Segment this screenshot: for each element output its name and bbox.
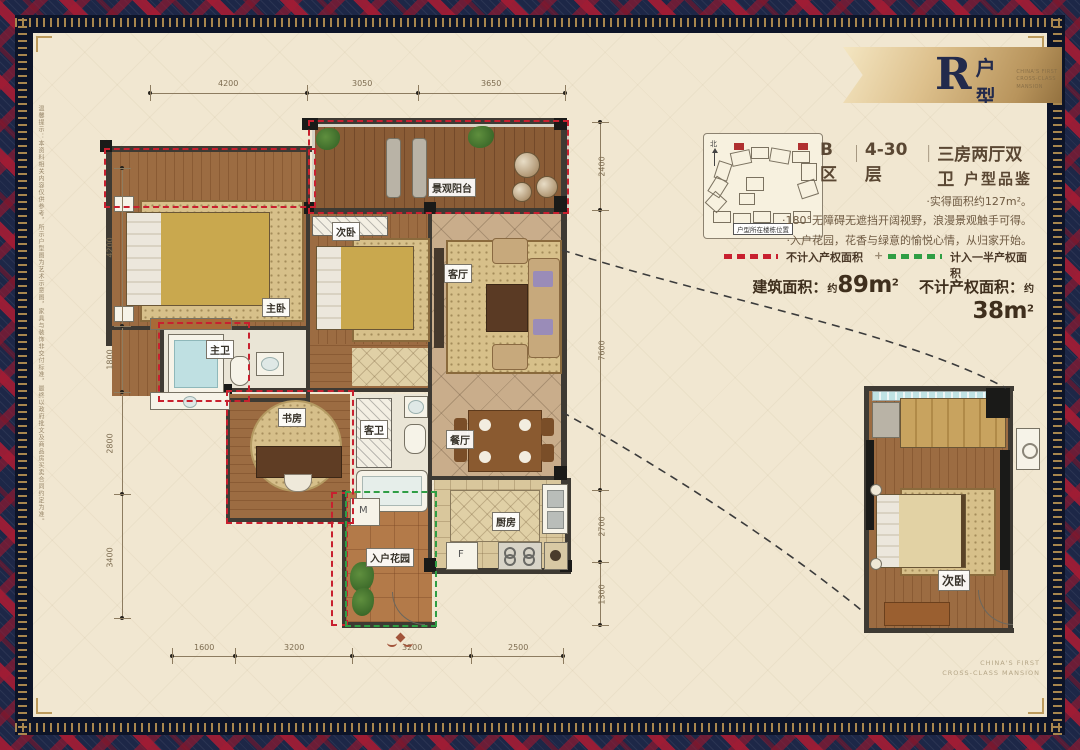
cabinet bbox=[544, 542, 568, 570]
sink bbox=[404, 396, 428, 418]
fridge: F bbox=[446, 542, 478, 570]
detail-shelf bbox=[872, 402, 900, 438]
room-label-balcony: 景观阳台 bbox=[428, 178, 476, 197]
corner-ornament bbox=[36, 36, 52, 52]
building-outline bbox=[792, 151, 810, 163]
unit-type-banner: R 户型 CHINA'S FIRST CROSS-CLASS MANSION bbox=[843, 47, 1062, 103]
unit-suffix: 户型 bbox=[976, 52, 1003, 110]
built-area-value: 89m bbox=[837, 272, 891, 298]
dining-chair bbox=[541, 418, 554, 436]
selling-point: ·实得面积约127m²。 bbox=[712, 192, 1032, 211]
room-label-study: 书房 bbox=[278, 408, 306, 427]
non-property-boundary-balcony bbox=[308, 120, 569, 214]
corner-ornament bbox=[36, 698, 52, 714]
red-dash-sample bbox=[724, 254, 778, 259]
ac-unit bbox=[1016, 428, 1040, 470]
closet bbox=[112, 330, 160, 396]
room-label-kitchen: 厨房 bbox=[492, 512, 520, 531]
frame-ticks-bottom bbox=[15, 723, 1065, 732]
footer-tagline: CHINA'S FIRST CROSS-CLASS MANSION bbox=[860, 658, 1040, 679]
selling-points: ·实得面积约127m²。 ·180°无障碍无遮挡开阔视野，浪漫景观触手可得。 ·… bbox=[712, 192, 1032, 250]
kitchen-sink-counter bbox=[542, 484, 568, 534]
toilet bbox=[404, 424, 426, 454]
excl-area-value: 38m bbox=[973, 298, 1027, 324]
excl-area-label: 不计产权面积： bbox=[919, 278, 1024, 296]
banner-tagline: CHINA'S FIRST CROSS-CLASS MANSION bbox=[1016, 69, 1062, 92]
dining-chair bbox=[541, 444, 554, 462]
legend-plus: + bbox=[874, 249, 883, 262]
legend: 不计入产权面积 + 计入一半产权面积 bbox=[712, 249, 1034, 263]
room-label-master: 主卧 bbox=[262, 298, 290, 317]
sink bbox=[256, 352, 284, 376]
corner-ornament bbox=[1028, 698, 1044, 714]
detail-bench bbox=[884, 602, 950, 626]
building-outline bbox=[746, 177, 764, 191]
room-label-master-bath: 主卫 bbox=[206, 340, 234, 359]
room-label-second: 次卧 bbox=[332, 222, 360, 241]
green-dash-sample bbox=[888, 254, 942, 259]
room-label-dining: 餐厅 bbox=[446, 430, 474, 449]
north-arrow-icon bbox=[714, 150, 715, 166]
detail-bed bbox=[876, 494, 966, 568]
brand-crest-icon bbox=[388, 632, 412, 648]
room-label-guest-bath: 客卫 bbox=[360, 420, 388, 439]
frame-ticks-right bbox=[1053, 15, 1062, 735]
armchair bbox=[492, 238, 528, 264]
selling-point: ·入户花园，花香与绿意的愉悦心情，从归家开始。 bbox=[712, 231, 1032, 250]
building-outline bbox=[769, 147, 791, 164]
frame-ticks-top bbox=[15, 18, 1065, 27]
sofa bbox=[528, 258, 560, 358]
legend-red-label: 不计入产权面积 bbox=[786, 249, 863, 265]
tv-cabinet bbox=[434, 248, 444, 348]
building-outline bbox=[730, 149, 752, 167]
unit-letter: R bbox=[935, 53, 972, 97]
hallway-runner bbox=[352, 348, 428, 386]
floorplan-poster: 温馨提示：本资料相关内容仅供参考，所示户型图为艺术示意图，家具与装饰非交付标准，… bbox=[0, 0, 1080, 750]
left-disclaimer: 温馨提示：本资料相关内容仅供参考，所示户型图为艺术示意图，家具与装饰非交付标准，… bbox=[36, 105, 45, 605]
nightstand bbox=[870, 484, 882, 496]
non-property-boundary bbox=[104, 148, 316, 208]
room-label-garden: 入户花园 bbox=[366, 548, 414, 567]
frame-ticks-left bbox=[18, 15, 27, 735]
detail-room-label: 次卧 bbox=[938, 570, 970, 591]
building-outline bbox=[751, 147, 769, 159]
subtitle: 户型品鉴 bbox=[812, 168, 1032, 189]
highlighted-unit-marker bbox=[734, 143, 744, 150]
room-label-living: 客厅 bbox=[444, 264, 472, 283]
selling-point: ·180°无障碍无遮挡开阔视野，浪漫景观触手可得。 bbox=[712, 211, 1032, 230]
bed-second bbox=[316, 246, 414, 330]
dining-table bbox=[468, 410, 542, 472]
armchair bbox=[492, 344, 528, 370]
nightstand bbox=[114, 306, 134, 322]
highlighted-unit-marker bbox=[798, 143, 808, 150]
nightstand bbox=[870, 558, 882, 570]
coffee-table bbox=[486, 284, 528, 332]
bed-master bbox=[126, 212, 270, 306]
area-summary: 建筑面积：约89m2 不计产权面积：约38m2 bbox=[712, 272, 1034, 324]
stove bbox=[498, 542, 542, 570]
built-area-label: 建筑面积： bbox=[752, 278, 827, 296]
